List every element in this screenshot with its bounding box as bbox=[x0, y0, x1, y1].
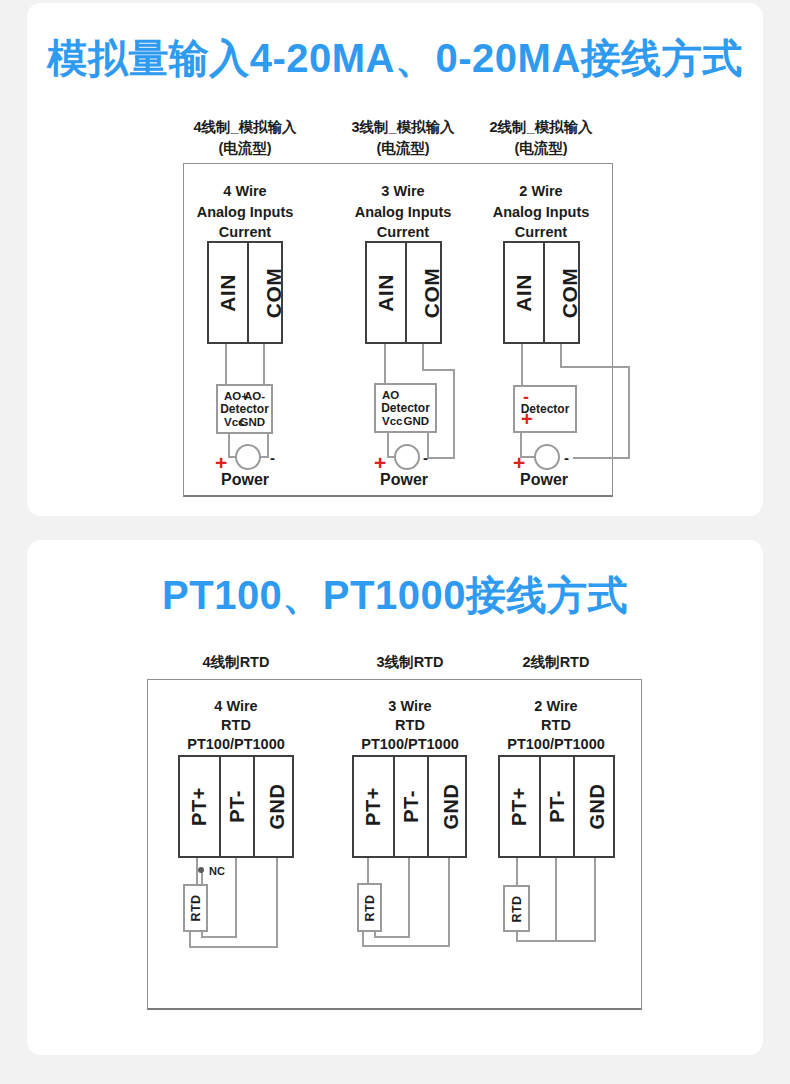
diagram-title-line: PT100/PT1000 bbox=[481, 735, 631, 754]
terminal-block: PT+ PT- GND bbox=[178, 755, 294, 858]
wire-segment bbox=[362, 945, 450, 947]
terminal-cell-pt-plus: PT+ bbox=[180, 757, 219, 856]
column-header-2wire-analog: 2线制_模拟输入 (电流型) bbox=[456, 117, 626, 159]
wire-segment bbox=[560, 344, 562, 368]
diagram-title-line: Current bbox=[328, 222, 478, 243]
power-label: Power bbox=[504, 471, 584, 489]
terminal-label-ain: AIN bbox=[374, 274, 398, 312]
column-header-4wire-analog: 4线制_模拟输入 (电流型) bbox=[160, 117, 330, 159]
wire-segment bbox=[276, 858, 278, 948]
wire-segment bbox=[384, 344, 386, 384]
diagram-title-line: RTD bbox=[481, 716, 631, 735]
wire-segment bbox=[189, 946, 278, 948]
wire-segment bbox=[521, 344, 523, 386]
terminal-label-gnd: GND bbox=[267, 784, 290, 830]
wire-segment bbox=[555, 858, 557, 942]
terminal-label-com: COM bbox=[420, 267, 444, 318]
terminal-cell-com: COM bbox=[405, 243, 458, 342]
header-line1: 4线制_模拟输入 bbox=[160, 117, 330, 138]
diagram-title-line: Current bbox=[170, 222, 320, 243]
detector-box: AO Detector Vcc GND bbox=[374, 383, 437, 433]
rtd-sensor-box: RTD bbox=[183, 884, 208, 932]
detector-box: AO+ AO- Detector Vcc GND bbox=[216, 384, 273, 434]
terminal-label-gnd: GND bbox=[441, 784, 464, 830]
wire-segment bbox=[201, 936, 237, 938]
terminal-label-ain: AIN bbox=[512, 274, 536, 312]
terminal-block: PT+ PT- GND bbox=[352, 755, 467, 858]
diagram-title-line: Analog Inputs bbox=[170, 202, 320, 223]
wire-segment bbox=[267, 434, 269, 458]
column-header-3wire-rtd: 3线制RTD bbox=[335, 652, 485, 673]
diagram-title-2wire-rtd: 2 Wire RTD PT100/PT1000 bbox=[481, 697, 631, 754]
terminal-block: AIN COM bbox=[207, 241, 283, 344]
terminal-cell-gnd: GND bbox=[427, 757, 475, 856]
diagram-title-line: 3 Wire bbox=[328, 181, 478, 202]
terminal-label-com: COM bbox=[558, 267, 582, 318]
diagram-title-3wire: 3 Wire Analog Inputs Current bbox=[328, 181, 478, 243]
power-source-circle bbox=[394, 444, 420, 470]
diagram-title-line: 2 Wire bbox=[481, 697, 631, 716]
detector-ao: AO bbox=[382, 389, 399, 401]
power-label: Power bbox=[205, 471, 285, 489]
terminal-cell-pt-plus: PT+ bbox=[354, 757, 393, 856]
terminal-cell-pt-minus: PT- bbox=[393, 757, 428, 856]
terminal-label-pt-minus: PT- bbox=[400, 790, 423, 823]
wire-segment bbox=[594, 858, 596, 942]
wire-segment bbox=[422, 369, 455, 371]
wire-segment bbox=[235, 858, 237, 938]
terminal-cell-gnd: GND bbox=[253, 757, 301, 856]
wire-segment bbox=[448, 858, 450, 947]
diagram-title-line: Analog Inputs bbox=[466, 202, 616, 223]
rtd-sensor-box: RTD bbox=[357, 883, 382, 932]
detector-box: - Detector + bbox=[513, 385, 577, 433]
power-plus-sign: + bbox=[374, 452, 386, 473]
terminal-cell-com: COM bbox=[543, 243, 596, 342]
wire-segment bbox=[408, 858, 410, 938]
power-plus-sign: + bbox=[215, 452, 227, 473]
terminal-block: AIN COM bbox=[503, 241, 580, 344]
detector-gnd: GND bbox=[239, 416, 265, 428]
terminal-label-pt-plus: PT+ bbox=[188, 787, 211, 826]
diagram-title-line: PT100/PT1000 bbox=[335, 735, 485, 754]
terminal-label-ain: AIN bbox=[216, 274, 240, 312]
diagram-title-line: RTD bbox=[161, 716, 311, 735]
terminal-cell-ain: AIN bbox=[209, 243, 247, 342]
detector-name: Detector bbox=[218, 402, 271, 416]
wire-segment bbox=[374, 936, 410, 938]
rtd-sensor-box: RTD bbox=[503, 885, 530, 932]
power-source-circle bbox=[534, 444, 560, 470]
diagram-title-line: RTD bbox=[335, 716, 485, 735]
wire-segment bbox=[427, 457, 455, 459]
power-plus-sign: + bbox=[513, 452, 525, 473]
power-label: Power bbox=[364, 471, 444, 489]
detector-positive-sign: + bbox=[521, 409, 533, 429]
section2-title: PT100、PT1000接线方式 bbox=[27, 568, 763, 623]
header-line2: (电流型) bbox=[160, 138, 330, 159]
detector-ao-minus: AO- bbox=[244, 390, 265, 402]
column-header-4wire-rtd: 4线制RTD bbox=[161, 652, 311, 673]
terminal-block: PT+ PT- GND bbox=[498, 755, 615, 858]
wire-segment bbox=[516, 858, 518, 887]
terminal-cell-gnd: GND bbox=[573, 757, 621, 856]
diagram-title-4wire-rtd: 4 Wire RTD PT100/PT1000 bbox=[161, 697, 311, 754]
wire-segment bbox=[387, 433, 389, 458]
rtd-label: RTD bbox=[189, 894, 203, 921]
detector-name: Detector bbox=[376, 401, 435, 415]
terminal-label-pt-plus: PT+ bbox=[362, 787, 385, 826]
section1-title: 模拟量输入4-20MA、0-20MA接线方式 bbox=[27, 31, 763, 86]
wire-segment bbox=[225, 344, 227, 384]
diagram-title-line: Current bbox=[466, 222, 616, 243]
diagram-title-line: 2 Wire bbox=[466, 181, 616, 202]
terminal-cell-pt-minus: PT- bbox=[539, 757, 574, 856]
nc-label: NC bbox=[209, 865, 225, 877]
power-source-circle bbox=[235, 444, 261, 470]
column-header-2wire-rtd: 2线制RTD bbox=[481, 652, 631, 673]
wire-segment bbox=[201, 872, 203, 884]
power-minus-sign: - bbox=[270, 450, 275, 465]
diagram-title-line: 3 Wire bbox=[335, 697, 485, 716]
rtd-card: PT100、PT1000接线方式 4线制RTD 3线制RTD 2线制RTD 4 … bbox=[27, 540, 763, 1055]
diagram-title-line: Analog Inputs bbox=[328, 202, 478, 223]
header-line1: 2线制_模拟输入 bbox=[456, 117, 626, 138]
wire-segment bbox=[367, 858, 369, 884]
analog-input-card: 模拟量输入4-20MA、0-20MA接线方式 4线制_模拟输入 (电流型) 3线… bbox=[27, 3, 763, 516]
wire-segment bbox=[573, 457, 630, 459]
wire-segment bbox=[263, 344, 265, 384]
wire-segment bbox=[228, 434, 230, 458]
terminal-block: AIN COM bbox=[365, 241, 442, 344]
power-minus-sign: - bbox=[564, 450, 569, 465]
terminal-label-gnd: GND bbox=[587, 784, 610, 830]
terminal-label-com: COM bbox=[262, 267, 286, 318]
detector-vcc: Vcc bbox=[382, 415, 402, 427]
diagram-title-line: PT100/PT1000 bbox=[161, 735, 311, 754]
terminal-cell-pt-minus: PT- bbox=[219, 757, 254, 856]
wire-segment bbox=[422, 344, 424, 371]
diagram-title-line: 4 Wire bbox=[170, 181, 320, 202]
diagram-title-4wire: 4 Wire Analog Inputs Current bbox=[170, 181, 320, 243]
rtd-label: RTD bbox=[363, 894, 377, 921]
terminal-label-pt-plus: PT+ bbox=[508, 787, 531, 826]
wire-segment bbox=[560, 366, 630, 368]
detector-gnd: GND bbox=[403, 415, 429, 427]
terminal-cell-pt-plus: PT+ bbox=[500, 757, 539, 856]
terminal-label-pt-minus: PT- bbox=[546, 790, 569, 823]
rtd-label: RTD bbox=[510, 895, 524, 922]
header-line2: (电流型) bbox=[456, 138, 626, 159]
nc-terminal-dot bbox=[198, 867, 204, 873]
power-minus-sign: - bbox=[423, 450, 428, 465]
terminal-cell-ain: AIN bbox=[505, 243, 543, 342]
diagram-title-line: 4 Wire bbox=[161, 697, 311, 716]
wire-segment bbox=[628, 366, 630, 459]
terminal-cell-ain: AIN bbox=[367, 243, 405, 342]
terminal-cell-com: COM bbox=[247, 243, 300, 342]
diagram-title-3wire-rtd: 3 Wire RTD PT100/PT1000 bbox=[335, 697, 485, 754]
diagram-title-2wire: 2 Wire Analog Inputs Current bbox=[466, 181, 616, 243]
terminal-label-pt-minus: PT- bbox=[226, 790, 249, 823]
wire-segment bbox=[453, 369, 455, 459]
